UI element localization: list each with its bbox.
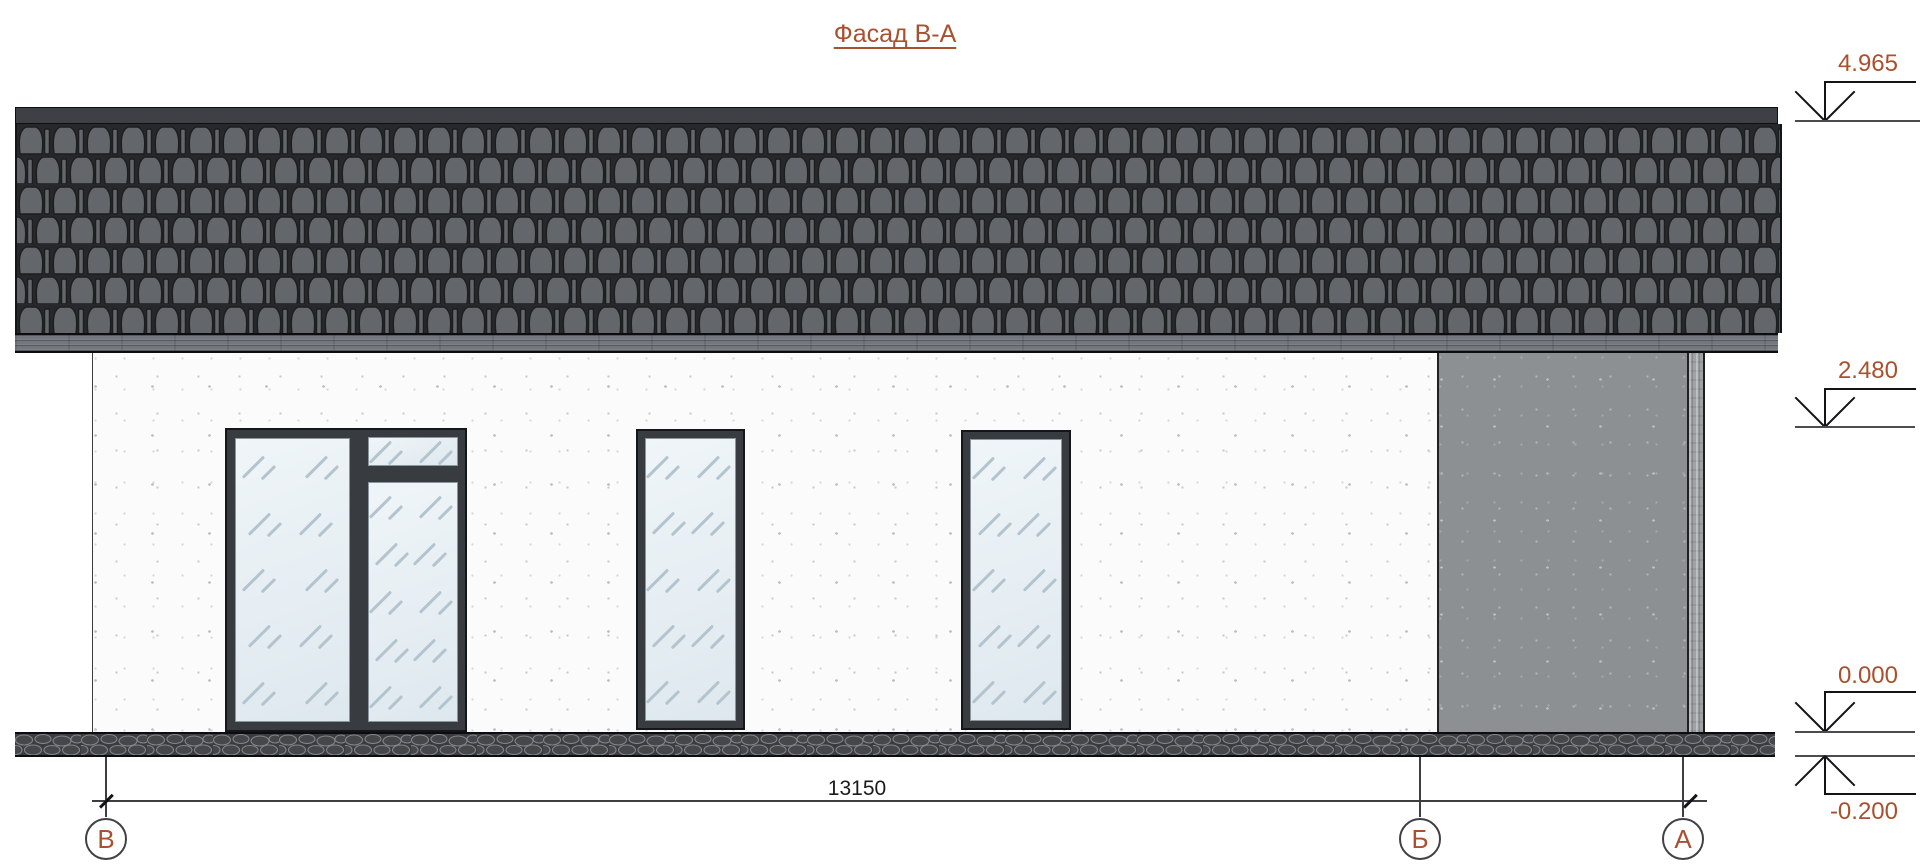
window-glass [645,438,736,721]
elevation-arrow [1824,702,1855,733]
dimension-value: 13150 [707,777,1007,801]
elevation-value: 2.480 [1795,357,1898,385]
door-glass-panel [235,438,350,722]
elevation-stem-line [1824,81,1826,121]
elevation-value: 4.965 [1795,50,1898,78]
elevation-arrow [1795,755,1826,786]
axis-label: А [1674,824,1691,855]
axis-extension-line [1419,757,1421,817]
window [961,430,1071,730]
facade-elevation-drawing: Фасад В-А [0,0,1920,865]
sidelight-glass [368,482,458,722]
elevation-shelf-line [1824,793,1916,795]
elevation-shelf-line [1824,691,1916,693]
level-line [1795,755,1915,757]
axis-extension-line [1682,757,1684,817]
elevation-shelf-line [1824,388,1916,390]
level-line [1795,120,1920,122]
axis-bubble: Б [1399,818,1441,860]
corner-column [1687,353,1705,732]
elevation-stem-line [1824,756,1826,794]
plinth-texture [15,734,1775,755]
axis-bubble: В [85,818,127,860]
plinth-base [15,732,1775,757]
elevation-shelf-line [1824,81,1916,83]
transom-glass [368,437,458,466]
window [636,429,745,730]
axis-label: В [97,824,114,855]
drawing-title: Фасад В-А [0,20,1790,49]
axis-label: Б [1411,824,1428,855]
elevation-arrow [1824,397,1855,428]
elevation-value: -0.200 [1795,798,1898,826]
elevation-arrow [1795,397,1826,428]
level-line [1795,426,1915,428]
roof-ridge-cap [15,107,1778,124]
elevation-arrow [1795,91,1826,122]
axis-bubble: А [1662,818,1704,860]
roof-tiles [15,124,1782,333]
axis-extension-line [105,757,107,817]
elevation-arrow [1824,91,1855,122]
door-window-assembly [225,428,467,732]
elevation-arrow [1795,702,1826,733]
elevation-stem-line [1824,388,1826,427]
elevation-stem-line [1824,691,1826,732]
level-line [1795,731,1915,733]
roof-fascia-board [15,333,1778,353]
window-glass [970,439,1062,721]
stone-wall-section [1437,353,1687,732]
elevation-value: 0.000 [1795,662,1898,690]
elevation-arrow [1824,755,1855,786]
